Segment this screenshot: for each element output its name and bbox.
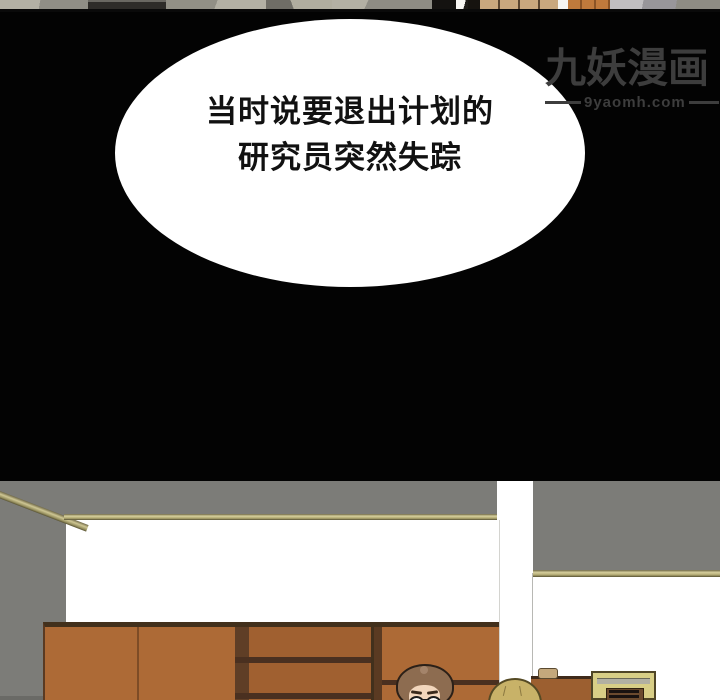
watermark-url-row: 9yaomh.com [545,94,720,111]
wood-crate [568,0,610,9]
shelf-board [235,693,378,699]
shelf-side-wall [235,627,249,700]
white-cloth [456,0,468,9]
figure-leg [432,0,456,9]
cabinet-knob [538,668,558,679]
wall-molding-right [533,570,720,577]
radio-slots [606,688,644,700]
cabinet-divider [371,627,382,700]
floor-tile [610,0,720,9]
radio-slot-bar [609,695,639,698]
hair-strand [519,686,522,696]
radio-top-band [597,678,650,684]
watermark-url: 9yaomh.com [584,94,686,111]
shelf-opening [235,627,378,700]
hair-part-highlight [420,666,428,674]
wall-shadow [0,696,43,700]
pillar-edge-left [499,520,500,700]
wall-molding-left [64,514,500,520]
figure-leg [468,0,480,9]
floor-tile [332,0,432,9]
figure-silhouette [88,0,166,9]
white-pillar [497,481,533,700]
wood-slats [480,0,558,9]
speech-line-1: 当时说要退出计划的 [115,89,585,135]
brown-haired-character-head [396,664,454,700]
shelf-board [235,657,378,663]
hair-strand [503,686,506,696]
wall-upper-left [0,481,500,514]
pillar-edge-right [532,573,533,677]
speech-bubble: 当时说要退出计划的 研究员突然失踪 [115,19,585,287]
speech-text: 当时说要退出计划的 研究员突然失踪 [115,89,585,181]
narration-panel: 当时说要退出计划的 研究员突然失踪 九妖漫画 9yaomh.com [0,12,720,481]
speech-line-2: 研究员突然失踪 [115,135,585,181]
watermark-title: 九妖漫画 [545,46,720,90]
floor-tile [166,0,266,9]
floor-tile [0,0,88,9]
floor-tile [266,0,332,9]
wall-upper-right [533,481,720,570]
dash-line-left [545,101,581,104]
comic-page: 当时说要退出计划的 研究员突然失踪 九妖漫画 9yaomh.com [0,0,720,700]
previous-panel-edge [0,0,720,12]
gap [558,0,568,9]
radio-slot-bar [609,690,639,693]
radio-cabinet [591,671,656,700]
cabinet-panel-seam [137,627,139,700]
dash-line-right [689,101,719,104]
room-panel [0,481,720,700]
site-watermark: 九妖漫画 9yaomh.com [545,46,720,111]
